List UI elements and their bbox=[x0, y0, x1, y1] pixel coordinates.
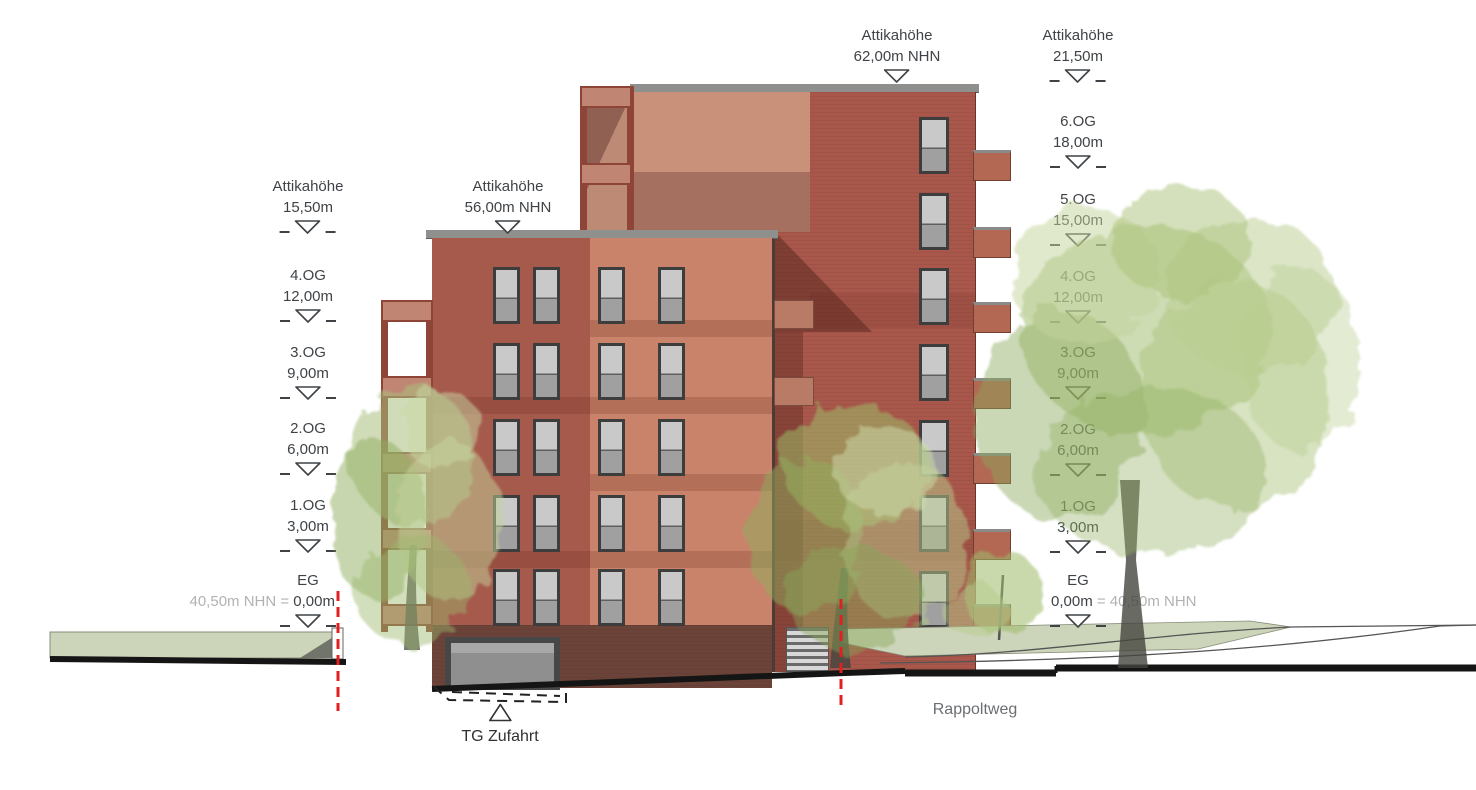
level-marker-icon bbox=[295, 539, 321, 553]
label-text: Attikahöhe bbox=[465, 176, 552, 197]
balcony-slab bbox=[580, 163, 632, 185]
label-text: Attikahöhe bbox=[854, 25, 941, 46]
window bbox=[658, 495, 685, 552]
balcony-slab bbox=[381, 528, 433, 550]
level-marker bbox=[1050, 612, 1106, 628]
balcony bbox=[973, 150, 1011, 181]
level-marker-icon bbox=[1065, 233, 1091, 247]
window bbox=[533, 495, 560, 552]
label-value: 15,50m bbox=[273, 197, 344, 218]
label-text: 5.OG bbox=[1050, 189, 1106, 210]
label-text: 2.OG bbox=[1050, 419, 1106, 440]
balcony bbox=[973, 378, 1011, 409]
balcony-slab bbox=[381, 604, 433, 626]
level-marker-icon bbox=[1065, 310, 1091, 324]
front-brick-band bbox=[590, 474, 772, 491]
window bbox=[493, 495, 520, 552]
level-marker-icon bbox=[1065, 540, 1091, 554]
level-label-right-2og: 2.OG 6,00m bbox=[1050, 419, 1106, 477]
front-balcony-tower bbox=[381, 300, 433, 632]
level-marker-icon bbox=[295, 462, 321, 476]
window bbox=[598, 495, 625, 552]
tree-trunk bbox=[1118, 480, 1148, 668]
balcony-slab bbox=[381, 452, 433, 474]
balcony-slab bbox=[381, 376, 433, 398]
level-label-left-eg: EG 40,50m NHN = 0,00m bbox=[280, 570, 336, 628]
level-marker-icon bbox=[495, 220, 521, 234]
window bbox=[919, 117, 949, 174]
level-label-left-3og: 3.OG 9,00m bbox=[280, 342, 336, 400]
window bbox=[493, 267, 520, 324]
attika-label-front: Attikahöhe 56,00m NHN bbox=[465, 176, 552, 234]
level-label-right-eg: EG 0,00m = 40,50m NHN bbox=[1050, 570, 1106, 628]
level-label-left-1og: 1.OG 3,00m bbox=[280, 495, 336, 553]
label-value: 56,00m NHN bbox=[465, 197, 552, 218]
window bbox=[493, 343, 520, 400]
tg-marker-icon bbox=[488, 703, 512, 722]
level-marker bbox=[1050, 461, 1106, 477]
level-marker bbox=[1050, 231, 1106, 247]
front-brick-band bbox=[432, 551, 772, 568]
window bbox=[533, 569, 560, 626]
window bbox=[919, 268, 949, 325]
window bbox=[919, 344, 949, 401]
label-text: 4.OG bbox=[1050, 266, 1106, 287]
level-marker bbox=[854, 67, 941, 83]
tg-zufahrt-label: TG Zufahrt bbox=[461, 703, 538, 746]
label-value-gray: = 40,50m NHN bbox=[1097, 593, 1197, 610]
window bbox=[658, 267, 685, 324]
level-marker bbox=[280, 460, 336, 476]
label-value: 12,00m bbox=[1050, 287, 1106, 308]
label-text: 1.OG bbox=[280, 495, 336, 516]
level-label-right-1og: 1.OG 3,00m bbox=[1050, 496, 1106, 554]
window bbox=[919, 571, 949, 628]
label-value: 12,00m bbox=[280, 286, 336, 307]
rear-balcony-tower bbox=[580, 86, 634, 232]
label-value: 6,00m bbox=[1050, 440, 1106, 461]
label-value: 6,00m bbox=[280, 439, 336, 460]
rear-building-facade-light bbox=[634, 92, 810, 232]
balcony bbox=[973, 529, 1011, 560]
balcony bbox=[973, 302, 1011, 333]
level-label-right-6og: 6.OG 18,00m bbox=[1050, 111, 1106, 169]
garage-door bbox=[445, 637, 560, 690]
label-value: 40,50m NHN = 0,00m bbox=[190, 591, 336, 612]
label-text: 1.OG bbox=[1050, 496, 1106, 517]
rear-brick-band bbox=[810, 293, 975, 328]
level-marker-icon bbox=[295, 614, 321, 628]
window bbox=[658, 419, 685, 476]
balcony bbox=[774, 300, 814, 329]
level-marker-icon bbox=[1065, 155, 1091, 169]
level-marker bbox=[1050, 308, 1106, 324]
label-value: 9,00m bbox=[1050, 363, 1106, 384]
attika-label-rear: Attikahöhe 62,00m NHN bbox=[854, 25, 941, 83]
label-value: 9,00m bbox=[280, 363, 336, 384]
elevation-drawing: Attikahöhe 62,00m NHN Attikahöhe 21,50m … bbox=[0, 0, 1476, 790]
window bbox=[919, 420, 949, 477]
label-text: 4.OG bbox=[280, 265, 336, 286]
level-label-right-4og: 4.OG 12,00m bbox=[1050, 266, 1106, 324]
label-text: Attikahöhe bbox=[273, 176, 344, 197]
label-value: 18,00m bbox=[1050, 132, 1106, 153]
window bbox=[598, 569, 625, 626]
level-marker bbox=[1043, 67, 1114, 83]
level-marker-icon bbox=[884, 69, 910, 83]
window bbox=[919, 495, 949, 552]
window bbox=[658, 343, 685, 400]
level-marker-icon bbox=[1065, 463, 1091, 477]
balcony bbox=[973, 604, 1011, 635]
level-marker-icon bbox=[1065, 614, 1091, 628]
label-text: EG bbox=[1050, 570, 1106, 591]
entrance-steps bbox=[786, 627, 829, 672]
window bbox=[598, 267, 625, 324]
balcony-slab bbox=[381, 300, 433, 322]
level-label-left-4og: 4.OG 12,00m bbox=[280, 265, 336, 323]
balcony-slab bbox=[580, 86, 632, 108]
window bbox=[533, 267, 560, 324]
window bbox=[919, 193, 949, 250]
level-marker-icon bbox=[295, 220, 321, 234]
level-marker bbox=[273, 218, 344, 234]
level-marker bbox=[280, 612, 336, 628]
balcony bbox=[973, 227, 1011, 258]
label-value: 15,00m bbox=[1050, 210, 1106, 231]
level-marker bbox=[280, 307, 336, 323]
level-label-left-2og: 2.OG 6,00m bbox=[280, 418, 336, 476]
label-value: 3,00m bbox=[1050, 517, 1106, 538]
label-text: 3.OG bbox=[1050, 342, 1106, 363]
label-text: 2.OG bbox=[280, 418, 336, 439]
window bbox=[493, 419, 520, 476]
level-marker bbox=[1050, 538, 1106, 554]
level-marker-icon bbox=[1065, 69, 1091, 83]
level-marker bbox=[280, 537, 336, 553]
balcony bbox=[973, 453, 1011, 484]
label-value-dark: 0,00m bbox=[1051, 593, 1093, 610]
window bbox=[493, 569, 520, 626]
level-marker-icon bbox=[295, 386, 321, 400]
level-marker bbox=[280, 384, 336, 400]
attika-label-right: Attikahöhe 21,50m bbox=[1043, 25, 1114, 83]
label-value-gray: 40,50m NHN = bbox=[190, 593, 290, 610]
label-text: Attikahöhe bbox=[1043, 25, 1114, 46]
window bbox=[658, 569, 685, 626]
tree-canopy-right bbox=[975, 185, 1360, 555]
street-label: Rappoltweg bbox=[933, 701, 1018, 719]
level-marker bbox=[1050, 384, 1106, 400]
level-marker-icon bbox=[295, 309, 321, 323]
label-text: 3.OG bbox=[280, 342, 336, 363]
level-label-right-3og: 3.OG 9,00m bbox=[1050, 342, 1106, 400]
label-text: TG Zufahrt bbox=[461, 728, 538, 746]
level-marker bbox=[1050, 153, 1106, 169]
level-marker-icon bbox=[1065, 386, 1091, 400]
garage-door-panel bbox=[451, 643, 554, 687]
window bbox=[598, 343, 625, 400]
balcony bbox=[774, 377, 814, 406]
level-marker bbox=[465, 218, 552, 234]
label-value: 0,00m = 40,50m NHN bbox=[1051, 591, 1197, 612]
label-value: 62,00m NHN bbox=[854, 46, 941, 67]
window bbox=[533, 343, 560, 400]
label-value-dark: 0,00m bbox=[293, 593, 335, 610]
label-value: 21,50m bbox=[1043, 46, 1114, 67]
level-label-right-5og: 5.OG 15,00m bbox=[1050, 189, 1106, 247]
attika-label-left: Attikahöhe 15,50m bbox=[273, 176, 344, 234]
label-text: 6.OG bbox=[1050, 111, 1106, 132]
label-text: EG bbox=[280, 570, 336, 591]
window bbox=[533, 419, 560, 476]
label-value: 3,00m bbox=[280, 516, 336, 537]
window bbox=[598, 419, 625, 476]
